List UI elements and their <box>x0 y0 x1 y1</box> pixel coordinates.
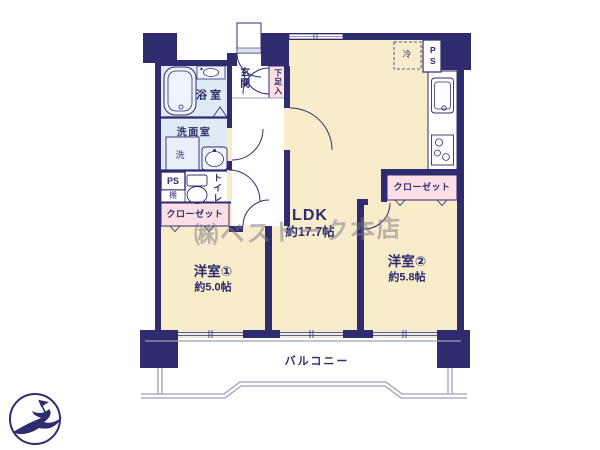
bathtub-icon <box>164 67 196 115</box>
stork-logo-icon <box>10 394 62 444</box>
top-window <box>289 33 343 40</box>
toilet-label: トイレ <box>212 173 222 203</box>
western1-label: 洋室① <box>194 264 232 280</box>
washroom-label: 洗面室 <box>177 127 212 139</box>
entrance-label: 玄関 <box>237 67 249 89</box>
balcony-outline <box>141 341 467 398</box>
shoe-cabinet-label: 下足入 <box>273 69 282 96</box>
washbasin-icon <box>202 147 227 170</box>
toilet-icon <box>187 175 207 204</box>
pipe-space-right-label: PS <box>427 45 437 67</box>
kitchen-sink-icon <box>432 78 454 113</box>
window-strips <box>178 330 437 338</box>
pipe-space-left-label: PS <box>167 176 179 186</box>
western2-area-label: 約5.8帖 <box>388 272 425 285</box>
shelf-label: 棚 <box>169 192 177 201</box>
closet-west2-label: クローゼット <box>393 182 450 192</box>
balcony-label: バルコニー <box>285 356 350 369</box>
refrigerator-label: 冷 <box>403 50 412 60</box>
bath-counter-icon <box>197 66 225 79</box>
watermark-text: ㈱ベストーク本店 <box>193 208 403 250</box>
floor-plan: 浴室 洗面室 洗 PS 棚 トイレ クローゼット 玄関 下足入 冷 PS LDK… <box>0 0 600 450</box>
entrance-door <box>237 23 261 53</box>
western2-label: 洋室② <box>388 254 426 270</box>
bathroom-label: 浴室 <box>196 90 224 103</box>
washer-label: 洗 <box>175 150 184 160</box>
western1-area-label: 約5.0帖 <box>194 282 231 295</box>
gas-stove-icon <box>432 135 454 165</box>
